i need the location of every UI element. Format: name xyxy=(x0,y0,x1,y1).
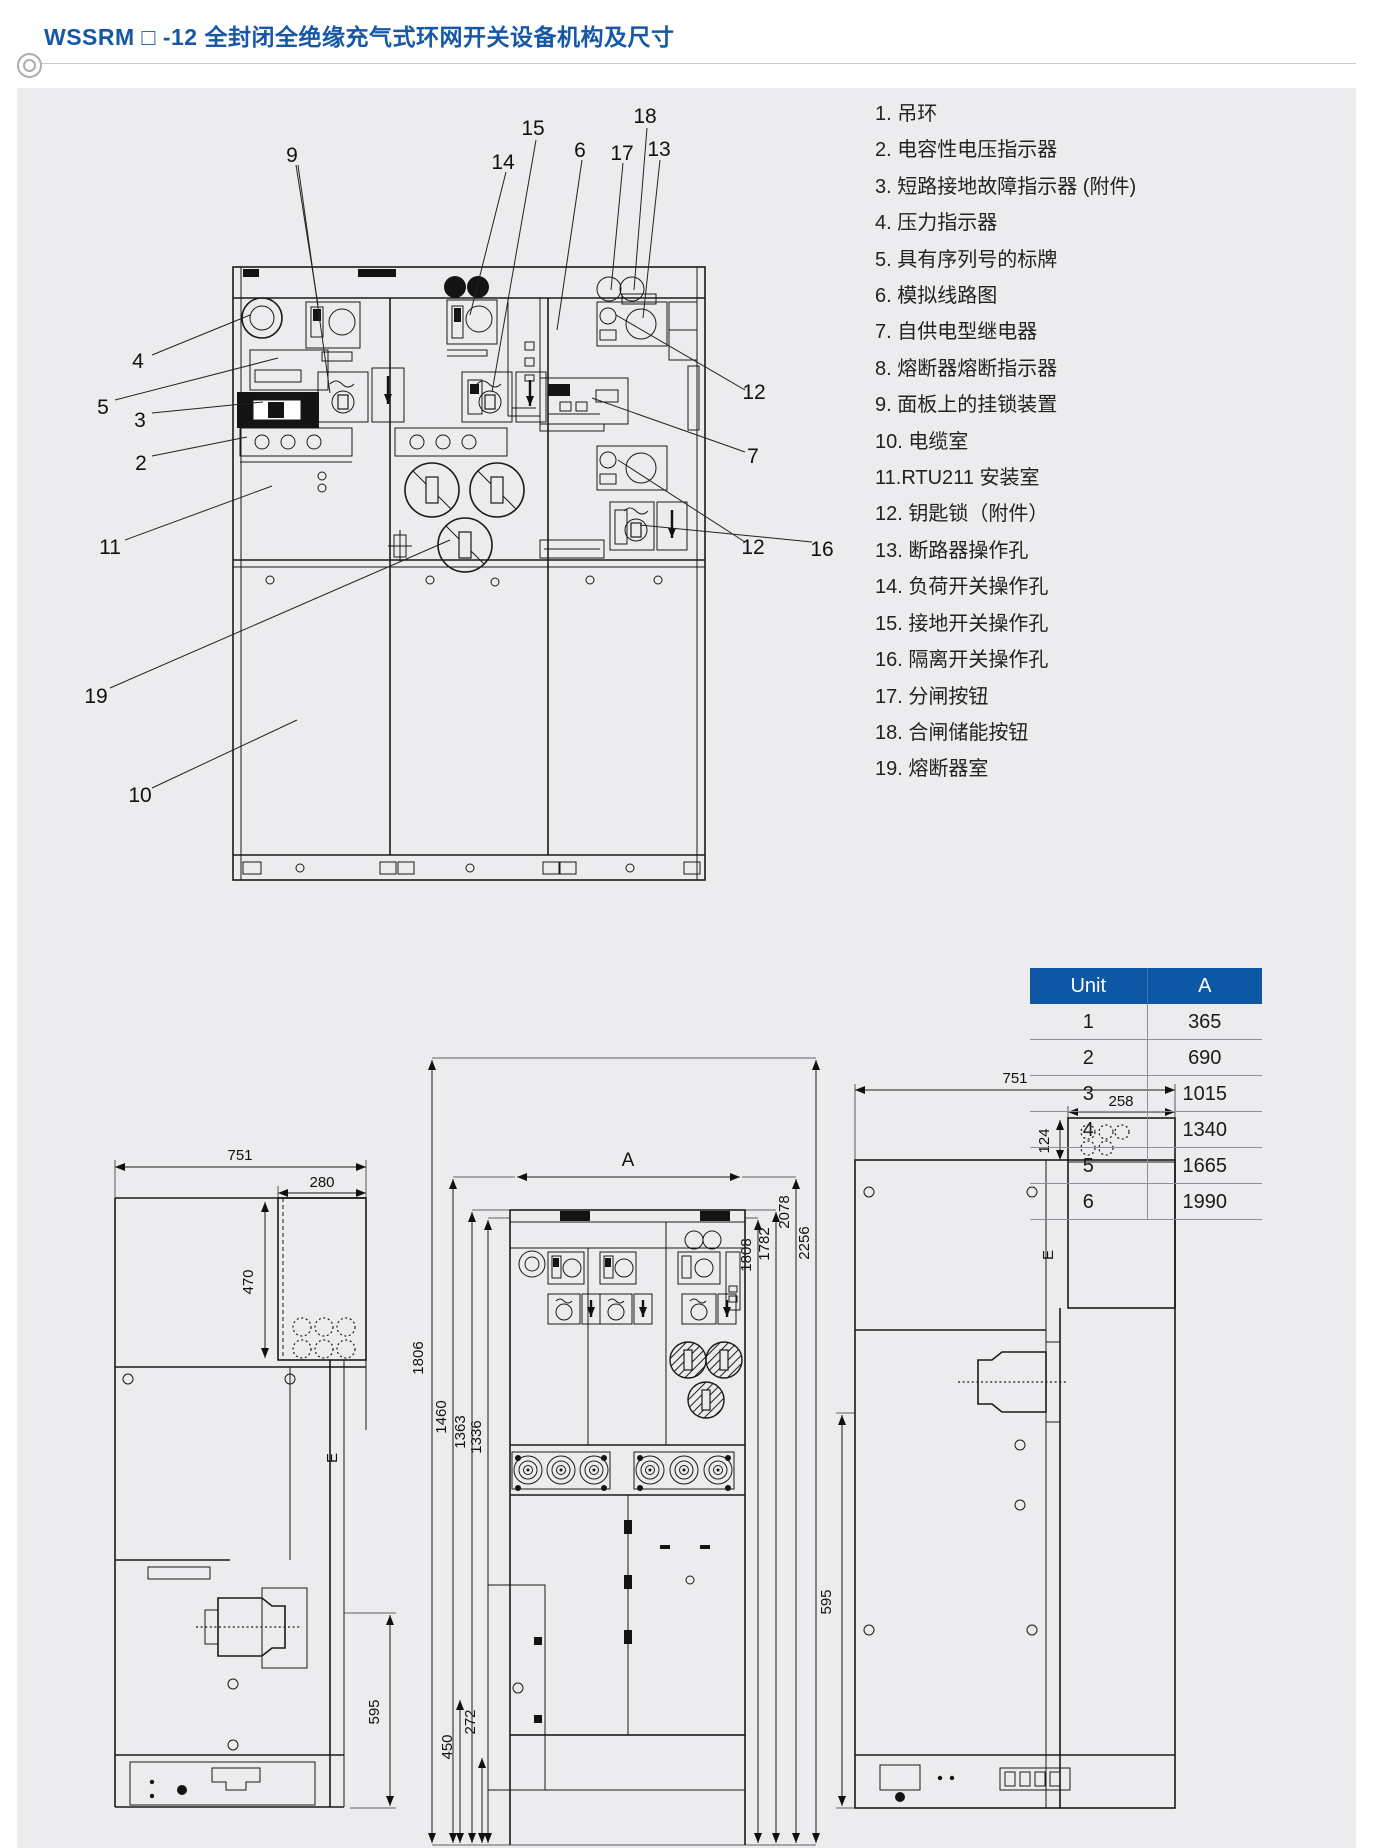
legend-item: 16. 隔离开关操作孔 xyxy=(875,642,1136,678)
callout-4: 4 xyxy=(132,350,144,373)
section-label-left: E xyxy=(324,1453,341,1463)
legend-item: 8. 熔断器熔断指示器 xyxy=(875,351,1136,387)
ring-ornament-icon xyxy=(17,53,42,78)
callout-14: 14 xyxy=(491,151,515,174)
dim-duct-450: 450 xyxy=(439,1734,456,1759)
dim-h-1808: 1808 xyxy=(738,1238,755,1271)
legend-item: 13. 断路器操作孔 xyxy=(875,533,1136,569)
front-view-modules xyxy=(548,1252,740,1324)
legend-item: 3. 短路接地故障指示器 (附件) xyxy=(875,169,1136,205)
legend-item: 1. 吊环 xyxy=(875,96,1136,132)
dim-h-1782: 1782 xyxy=(756,1227,773,1260)
legend-item: 9. 面板上的挂锁装置 xyxy=(875,387,1136,423)
legend-item: 6. 模拟线路图 xyxy=(875,278,1136,314)
front-view-drawing: 9 15 14 6 17 18 13 4 5 3 2 11 19 10 12 7 xyxy=(84,105,833,880)
unit-table-header-a: A xyxy=(1147,968,1263,1004)
hatched-fuse-circles xyxy=(670,1342,742,1418)
table-cell-unit: 1 xyxy=(1030,1004,1147,1040)
table-row: 1 365 xyxy=(1030,1004,1262,1040)
unit-table-body: 1 365 2 690 3 1015 4 1340 5 1665 6 1990 xyxy=(1030,1004,1262,1220)
table-row: 3 1015 xyxy=(1030,1076,1262,1112)
callout-19: 19 xyxy=(84,685,107,708)
front-middle-bay xyxy=(388,298,546,572)
unit-dimension-table: Unit A 1 365 2 690 3 1015 4 1340 5 xyxy=(1030,968,1262,1220)
callout-5: 5 xyxy=(97,396,109,419)
callout-18: 18 xyxy=(633,105,656,128)
table-cell-a: 690 xyxy=(1147,1040,1263,1076)
legend-item: 7. 自供电型继电器 xyxy=(875,314,1136,350)
dim-left-upper-height: 470 xyxy=(240,1269,257,1294)
table-row: 5 1665 xyxy=(1030,1148,1262,1184)
table-row: 4 1340 xyxy=(1030,1112,1262,1148)
legend-item: 5. 具有序列号的标牌 xyxy=(875,242,1136,278)
table-cell-a: 1015 xyxy=(1147,1076,1263,1112)
catalog-page: WSSRM □ -12 全封闭全绝缘充气式环网开关设备机构及尺寸 xyxy=(0,0,1373,1848)
left-side-view-drawing: 751 280 470 xyxy=(115,1147,396,1808)
dim-right-width: 751 xyxy=(1002,1070,1027,1087)
callout-15: 15 xyxy=(521,117,544,140)
dim-h-2256: 2256 xyxy=(796,1226,813,1259)
legend-item: 17. 分闸按钮 xyxy=(875,679,1136,715)
legend-item: 12. 钥匙锁（附件） xyxy=(875,496,1136,532)
callout-6: 6 xyxy=(574,139,586,162)
unit-table-header: Unit A xyxy=(1030,968,1262,1004)
front-right-bay xyxy=(540,294,699,558)
table-cell-a: 1340 xyxy=(1147,1112,1263,1148)
callout-12a: 12 xyxy=(742,381,765,404)
legend-item: 19. 熔断器室 xyxy=(875,751,1136,787)
dim-h-1460: 1460 xyxy=(433,1400,450,1433)
callout-10: 10 xyxy=(128,784,151,807)
callout-leaders xyxy=(110,128,812,788)
legend-item: 4. 压力指示器 xyxy=(875,205,1136,241)
legend-item: 10. 电缆室 xyxy=(875,424,1136,460)
page-title: WSSRM □ -12 全封闭全绝缘充气式环网开关设备机构及尺寸 xyxy=(44,18,674,52)
title-divider xyxy=(36,63,1356,64)
dim-left-top-width: 280 xyxy=(309,1174,334,1191)
table-cell-a: 365 xyxy=(1147,1004,1263,1040)
section-label-right: E xyxy=(1040,1250,1057,1260)
callout-9: 9 xyxy=(286,144,298,167)
callout-11: 11 xyxy=(99,536,121,559)
table-cell-unit: 3 xyxy=(1030,1076,1147,1112)
callout-13: 13 xyxy=(647,138,670,161)
table-cell-a: 1665 xyxy=(1147,1148,1263,1184)
dim-h-1336: 1336 xyxy=(468,1420,485,1453)
legend-item: 2. 电容性电压指示器 xyxy=(875,132,1136,168)
table-cell-unit: 4 xyxy=(1030,1112,1147,1148)
unit-table-header-unit: Unit xyxy=(1030,968,1147,1004)
table-row: 2 690 xyxy=(1030,1040,1262,1076)
legend-list: 1. 吊环2. 电容性电压指示器3. 短路接地故障指示器 (附件)4. 压力指示… xyxy=(875,96,1136,788)
legend-item: 18. 合闸储能按钮 xyxy=(875,715,1136,751)
table-cell-unit: 5 xyxy=(1030,1148,1147,1184)
fuse-symbols xyxy=(405,463,524,572)
table-row: 6 1990 xyxy=(1030,1184,1262,1220)
legend-item: 14. 负荷开关操作孔 xyxy=(875,569,1136,605)
dim-h-1363: 1363 xyxy=(452,1415,469,1448)
callout-12b: 12 xyxy=(741,536,764,559)
dim-left-lower-height: 595 xyxy=(366,1699,383,1724)
dim-width-A: A xyxy=(622,1150,635,1171)
content-panel: 9 15 14 6 17 18 13 4 5 3 2 11 19 10 12 7 xyxy=(17,88,1356,1848)
callout-17: 17 xyxy=(610,142,633,165)
table-cell-unit: 6 xyxy=(1030,1184,1147,1220)
dim-left-width: 751 xyxy=(227,1147,252,1164)
table-cell-a: 1990 xyxy=(1147,1184,1263,1220)
dim-right-lower-height: 595 xyxy=(818,1589,835,1614)
callout-7: 7 xyxy=(747,445,759,468)
callout-2: 2 xyxy=(135,452,147,475)
cable-bushings xyxy=(510,1445,745,1495)
dim-h-1806: 1806 xyxy=(410,1341,427,1374)
dim-duct-272: 272 xyxy=(462,1709,479,1734)
callout-3: 3 xyxy=(134,409,146,432)
table-cell-unit: 2 xyxy=(1030,1040,1147,1076)
dim-h-2078: 2078 xyxy=(776,1195,793,1228)
callout-16: 16 xyxy=(810,538,833,561)
legend-item: 11.RTU211 安装室 xyxy=(875,460,1136,496)
dimensioned-front-view-drawing: 1806 1460 1363 1336 1808 1782 2078 2256 … xyxy=(410,1058,816,1845)
legend-item: 15. 接地开关操作孔 xyxy=(875,606,1136,642)
